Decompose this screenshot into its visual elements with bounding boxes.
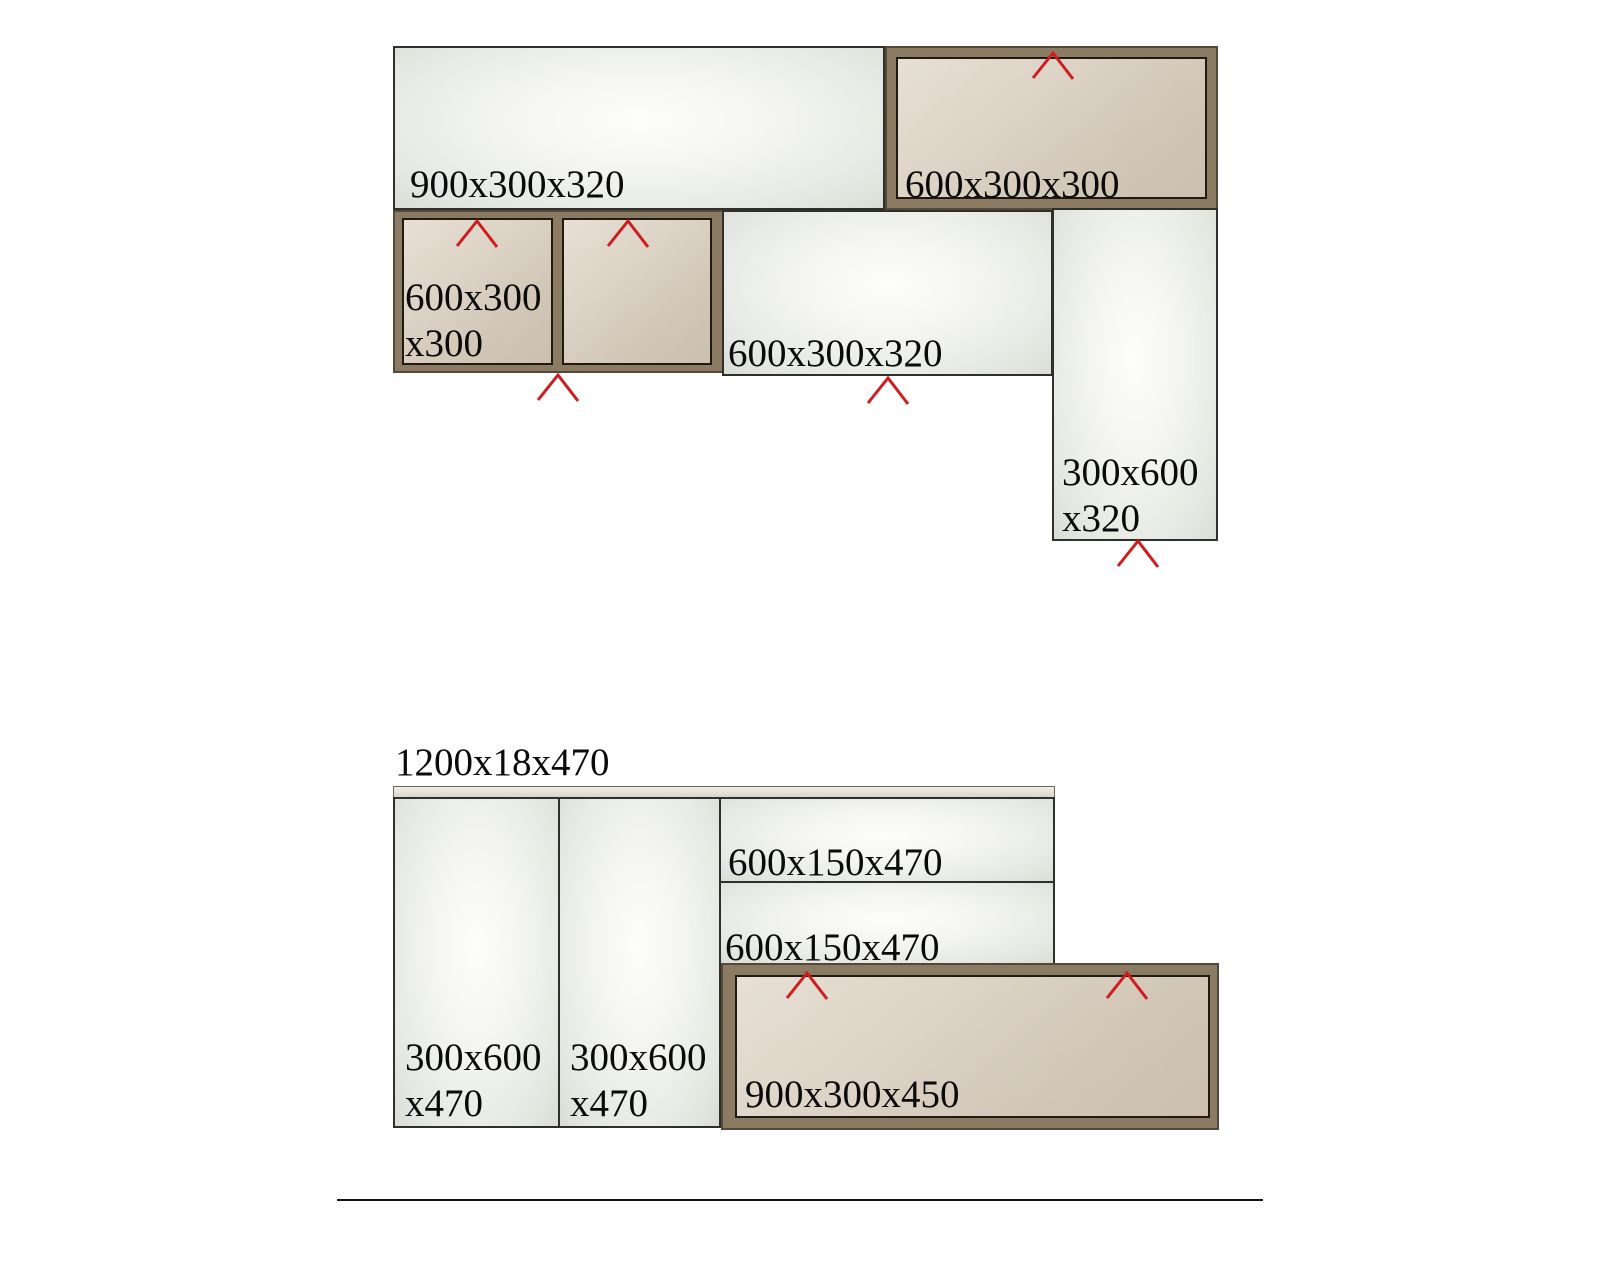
- door-open-direction-arrow-icon: [865, 375, 911, 405]
- tall-panel-left-label: 300x600 x470: [405, 1035, 542, 1127]
- wall-cabinet-double-label-line2: x300: [405, 321, 542, 367]
- side-panel-300-label: 300x600 x320: [1062, 450, 1199, 542]
- wall-cabinet-double-label-line1: 600x300: [405, 275, 542, 321]
- tall-panel-right-label: 300x600 x470: [570, 1035, 707, 1127]
- door-open-direction-arrow-icon: [1104, 970, 1150, 1000]
- drawer-front-upper-label: 600x150x470: [728, 840, 943, 886]
- tall-panel-left-label-line1: 300x600: [405, 1035, 542, 1081]
- shelf-panel-900-label: 900x300x320: [410, 162, 625, 208]
- door-open-direction-arrow-icon: [1030, 50, 1076, 80]
- door-open-direction-arrow-icon: [784, 970, 830, 1000]
- side-panel-300-label-line2: x320: [1062, 496, 1199, 542]
- shelf-panel-600-label: 600x300x320: [728, 331, 943, 377]
- side-panel-300-label-line1: 300x600: [1062, 450, 1199, 496]
- cabinet-cutting-diagram: 900x300x320 600x300x300 600x300 x300 600…: [0, 0, 1600, 1280]
- base-cabinet-900-label: 900x300x450: [745, 1072, 960, 1118]
- door-open-direction-arrow-icon: [454, 218, 500, 248]
- door-open-direction-arrow-icon: [1115, 538, 1161, 568]
- wall-cabinet-600-label: 600x300x300: [905, 162, 1120, 208]
- door-open-direction-arrow-icon: [535, 372, 581, 402]
- tall-panel-left-label-line2: x470: [405, 1081, 542, 1127]
- worktop-label: 1200x18x470: [395, 740, 610, 786]
- door-open-direction-arrow-icon: [605, 218, 651, 248]
- tall-panel-right-label-line2: x470: [570, 1081, 707, 1127]
- wall-cabinet-double-label: 600x300 x300: [405, 275, 542, 367]
- tall-panel-right-label-line1: 300x600: [570, 1035, 707, 1081]
- floor-line: [337, 1199, 1263, 1201]
